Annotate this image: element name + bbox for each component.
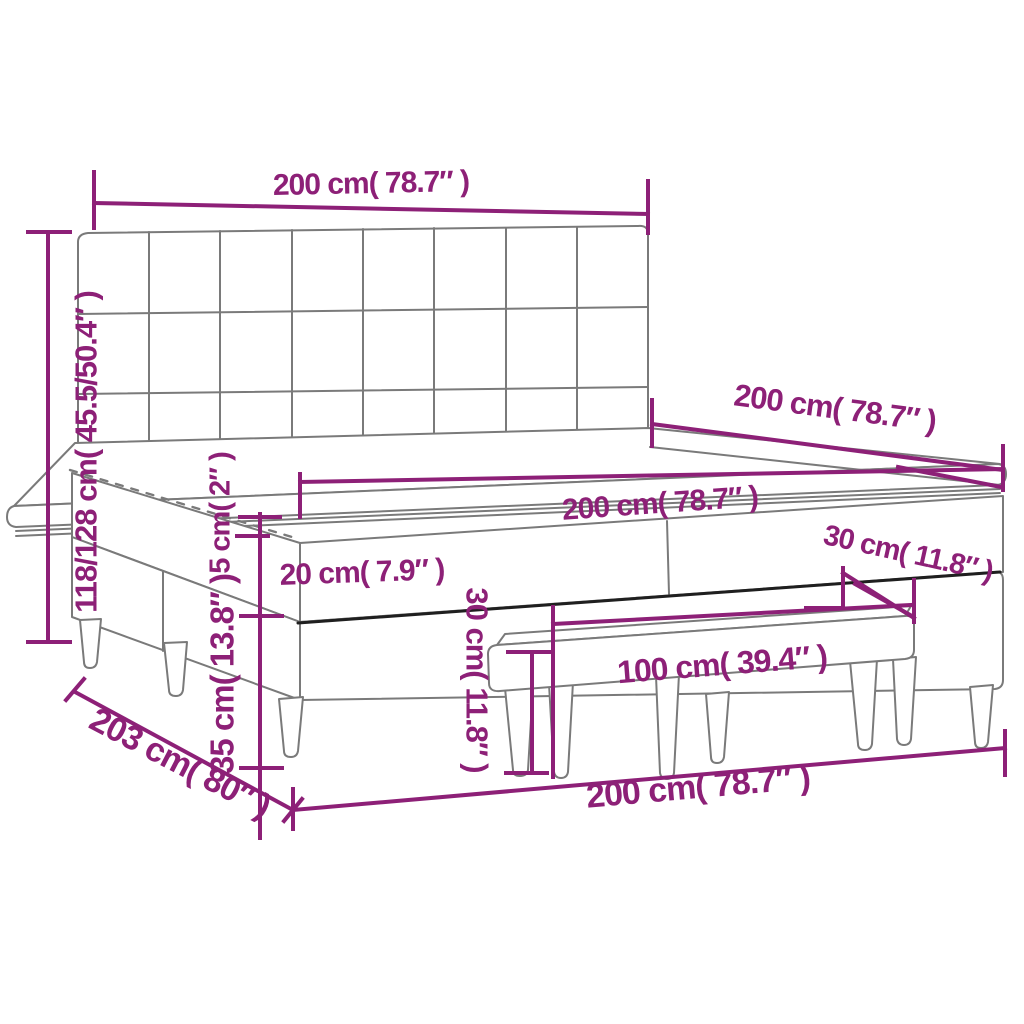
- bench-leg: [505, 686, 533, 776]
- dim-bed-height-lines: [28, 232, 70, 642]
- label-headboard-width: 200 cm( 78.7″ ): [273, 167, 470, 201]
- label-bed-height: 118/128 cm( 45.5/50.4″ ): [71, 291, 102, 613]
- bench-leg: [850, 659, 877, 750]
- label-bench-height: 30 cm( 11.8″ ): [462, 587, 493, 772]
- bench-leg: [893, 657, 916, 745]
- label-mattress-height: 20 cm( 7.9″ ): [279, 555, 445, 591]
- dimension-diagram: 200 cm( 78.7″ ) 118/128 cm( 45.5/50.4″ )…: [0, 0, 1024, 1024]
- label-topper-height: 5 cm( 2″ ): [207, 452, 236, 574]
- label-base-leg-height: 35 cm( 13.8″ ): [206, 574, 239, 774]
- bed-line-art: [0, 0, 1024, 1024]
- bench-leg: [656, 674, 679, 779]
